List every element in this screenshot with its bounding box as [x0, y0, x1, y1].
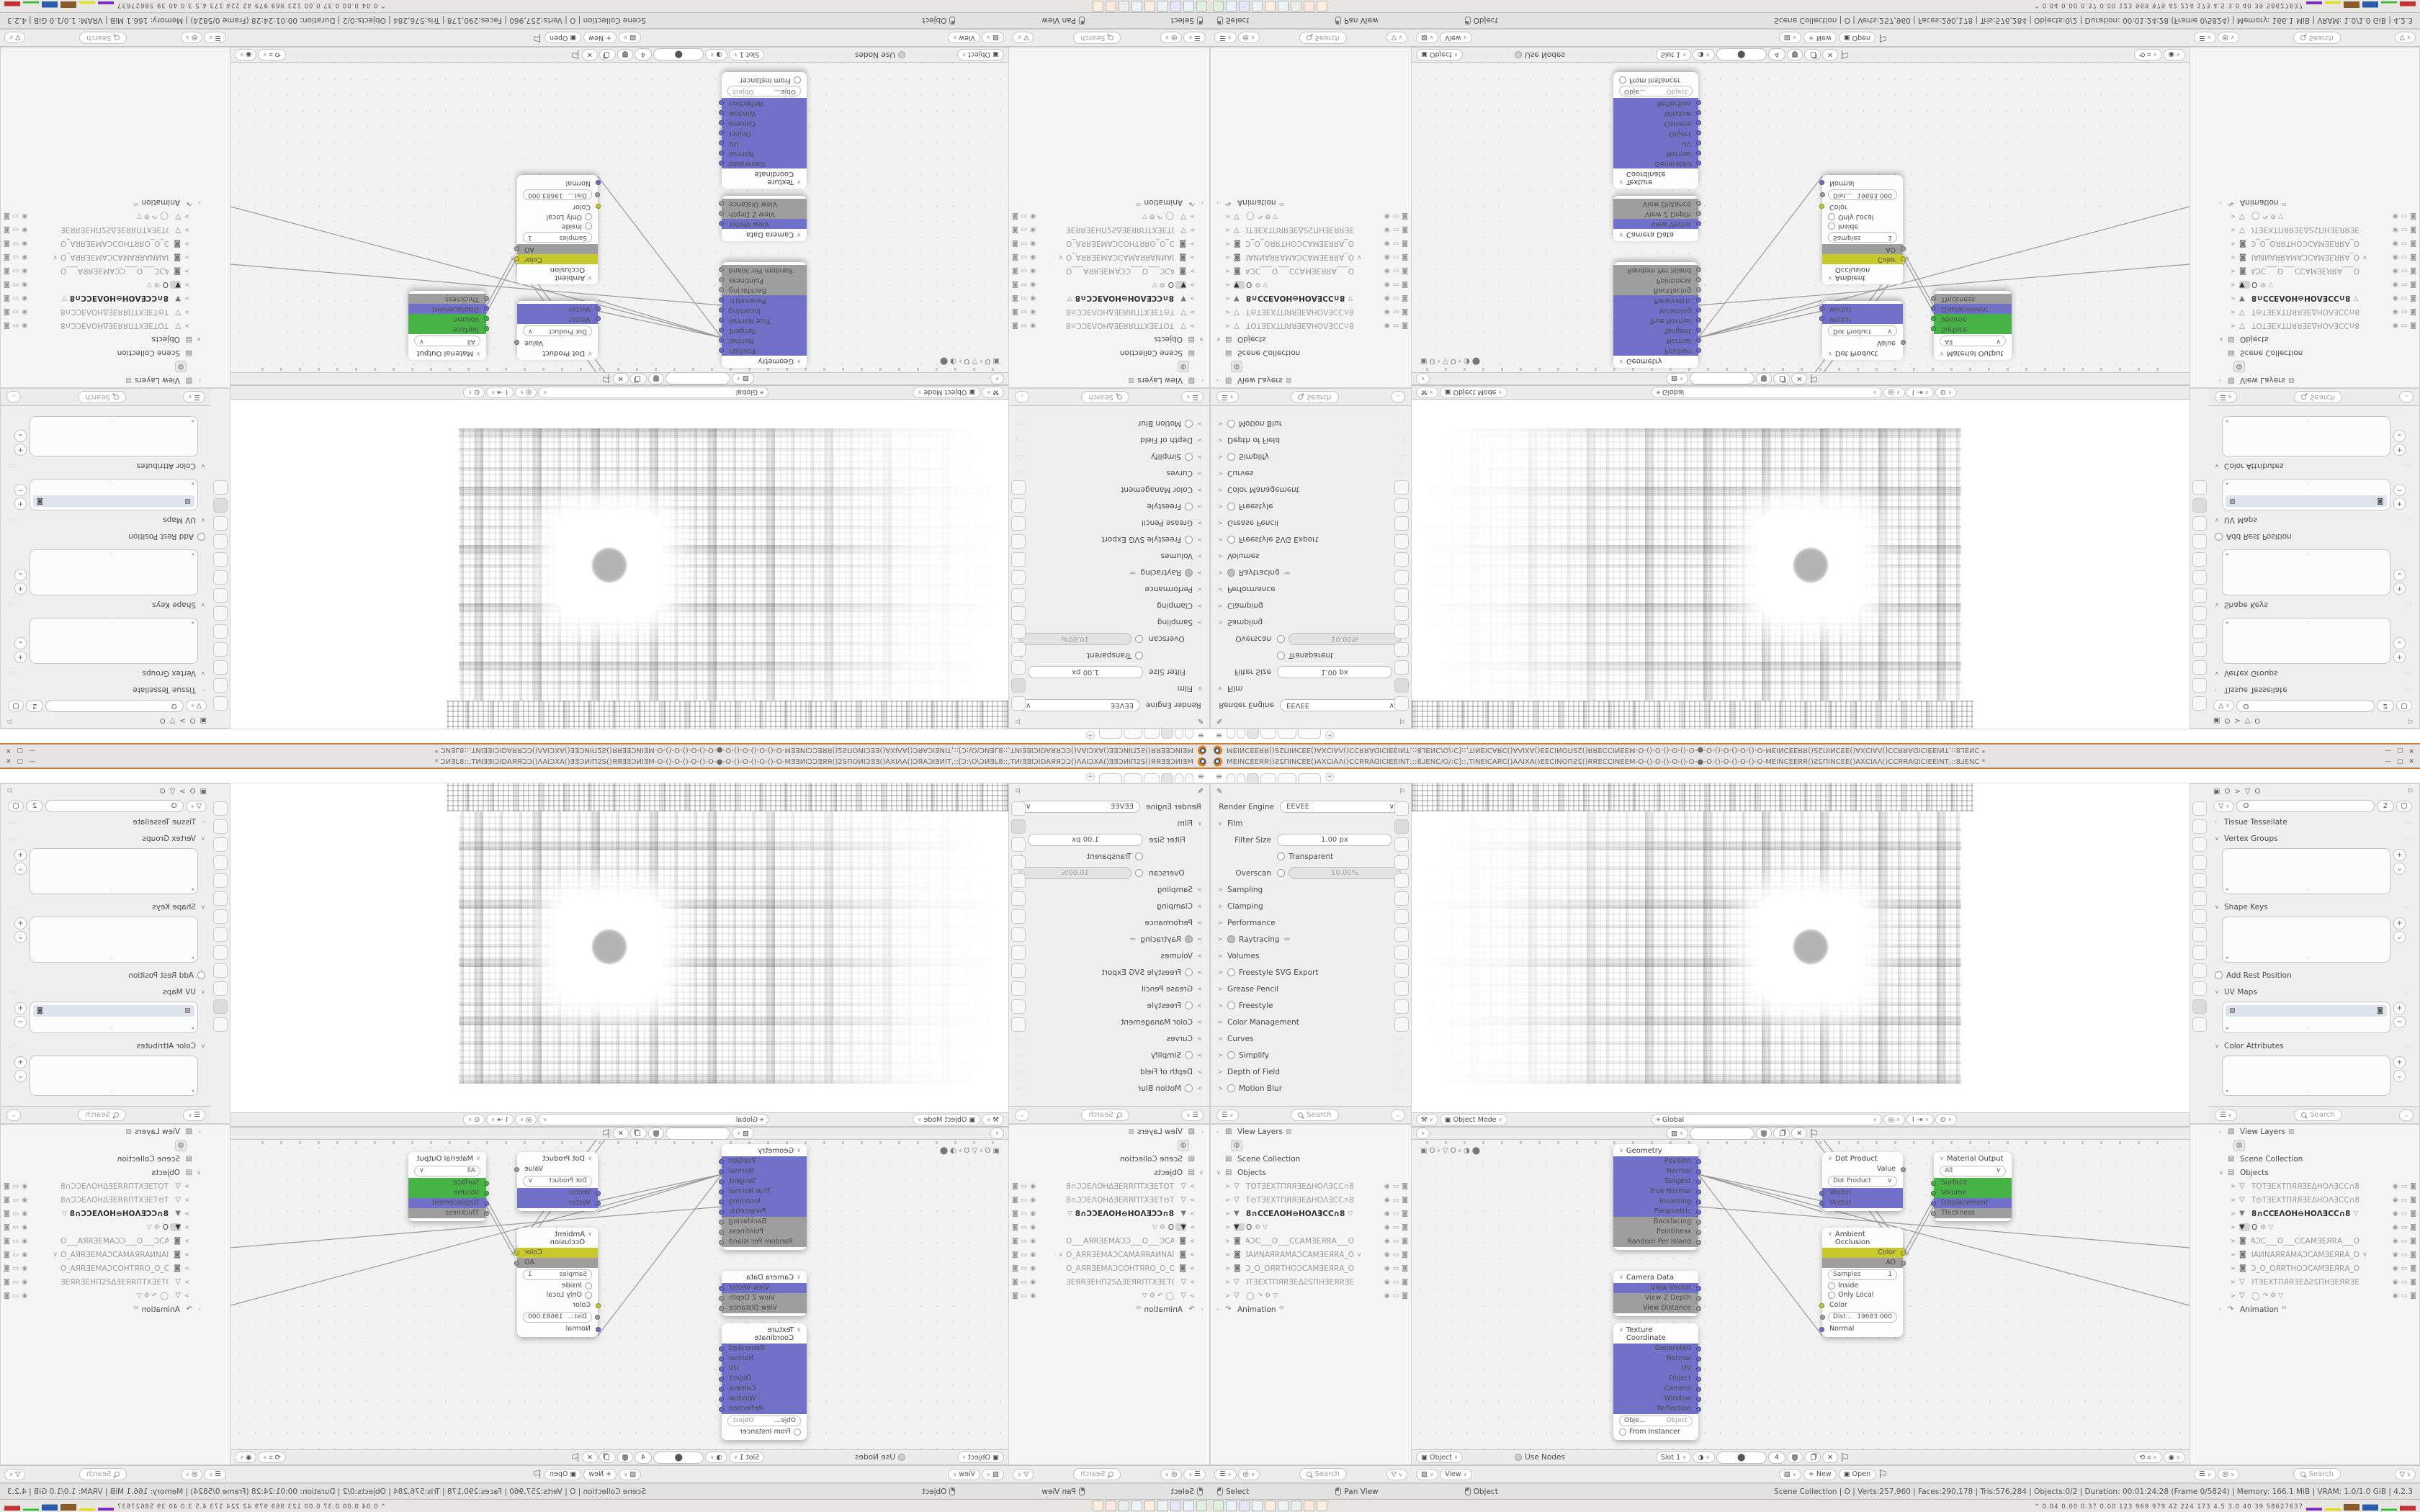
- outliner-object-row[interactable]: > ▽ 8∩ƆƆEΛOHΔƎERRΠTXƎETOTƎEXT ◉▭◙: [1009, 319, 1209, 333]
- properties-tab-icon[interactable]: [213, 480, 228, 495]
- disable-render-icon[interactable]: ◙: [4, 1224, 10, 1231]
- taskbar-app-icon[interactable]: [1317, 1, 1327, 12]
- node-output-socket[interactable]: UV: [722, 138, 807, 148]
- editor-type-button[interactable]: ▨∨: [982, 1469, 1004, 1480]
- hide-icon[interactable]: ◉: [1030, 268, 1036, 275]
- outliner-object-row[interactable]: > ▽ ƎEЯRƎEHΠ2SΔƎEЯRΠTXƎETOTƎEXT ◉▭◙: [2190, 1275, 2419, 1289]
- open-image-button[interactable]: ▣ Open: [544, 1469, 581, 1480]
- shape-key-specials-button[interactable]: ⌄: [2393, 931, 2406, 943]
- material-users-count[interactable]: 4: [1768, 49, 1785, 61]
- ao-only-local-checkbox[interactable]: Only Local: [1828, 213, 1897, 221]
- workspace-tab[interactable]: [1227, 773, 1235, 783]
- outliner-object-row[interactable]: > ▽ 8∩ƆƆEΛOHΔƎERRΠTXƎETOTƎEXT ◉▭◙: [1211, 319, 1411, 333]
- properties-tab-icon[interactable]: [2192, 642, 2207, 657]
- disable-render-icon[interactable]: ◙: [2410, 1197, 2416, 1204]
- color-attribute-specials-button[interactable]: ⌄: [2393, 430, 2406, 442]
- render-panel-row[interactable]: > Simplify ::::: [1211, 1047, 1411, 1063]
- hide-icon[interactable]: ◉: [2393, 323, 2398, 330]
- tray-expander-icon[interactable]: ^: [2034, 1503, 2039, 1511]
- outliner-object-row[interactable]: > ▽ ◯ ↷ ⚙ ▽ ◉▭◙: [2190, 210, 2419, 223]
- disable-render-icon[interactable]: ◙: [1012, 323, 1018, 330]
- unlink-button[interactable]: ✕: [1822, 1452, 1838, 1463]
- add-uv-map-button[interactable]: +: [2393, 1002, 2406, 1014]
- add-rest-position-checkbox[interactable]: [2215, 533, 2223, 541]
- taskbar-app-icon[interactable]: [1239, 1500, 1250, 1511]
- hide-icon[interactable]: ◉: [22, 1197, 27, 1204]
- outliner-object-row[interactable]: > ▽ ◯ ↷ ⚙ ▽ ◉▭◙: [1211, 210, 1411, 223]
- disable-render-icon[interactable]: ◙: [1012, 1197, 1018, 1204]
- workspace-tab[interactable]: [1144, 773, 1160, 783]
- outliner-object-row[interactable]: > ◙ O_AЯRƎEMAƆCOHTЯRO_O_OЯRTH ◉▭◙: [1009, 1261, 1209, 1275]
- fake-user-button[interactable]: [617, 1452, 633, 1463]
- copy-button[interactable]: [630, 1128, 647, 1139]
- workspace-tab[interactable]: [1227, 729, 1235, 739]
- outliner-object-row[interactable]: > ▽ 8∩ƆƆEΛOHΔƎERRΠTXƎET⊖TƎEXT ◉▭◙: [1, 1193, 230, 1207]
- node-output-socket[interactable]: Reflection: [722, 1404, 807, 1414]
- hide-icon[interactable]: ◉: [1384, 254, 1390, 261]
- properties-tab-icon[interactable]: [2192, 999, 2207, 1014]
- ao-distance-field[interactable]: Dist...19683.000: [1828, 189, 1897, 200]
- outliner-object-row[interactable]: > ◙ O_AЯRƎEMAƆCAMAЯRAИNAΠ_Ɔ ∨ ◉▭◙: [1211, 1248, 1411, 1261]
- film-panel-header[interactable]: Film: [1178, 685, 1193, 693]
- node-output-socket[interactable]: Incoming: [722, 305, 807, 315]
- workspace-tab[interactable]: [1124, 729, 1142, 739]
- disable-viewport-icon[interactable]: ▭: [13, 1210, 19, 1218]
- outliner-object-row[interactable]: > ▽ 8∩ƆƆEΛOHΔƎERRΠTXƎET⊖TƎEXT ◉▭◙: [1211, 305, 1411, 319]
- overscan-field[interactable]: 10.00%: [1019, 867, 1131, 879]
- unlink-button[interactable]: ✕: [613, 1128, 629, 1139]
- disable-render-icon[interactable]: ◙: [2410, 268, 2416, 275]
- disable-render-icon[interactable]: ◙: [2410, 323, 2416, 330]
- workspace-menu-icon[interactable]: ≡: [1216, 731, 1222, 740]
- view-layers-label[interactable]: View Layers: [2240, 377, 2285, 385]
- outliner-object-row[interactable]: > ▽ ◯ ↷ ⚙ ▽ ◉▭◙: [1009, 1289, 1209, 1302]
- disable-render-icon[interactable]: ◙: [4, 1197, 10, 1204]
- disable-viewport-icon[interactable]: ▭: [1021, 295, 1028, 302]
- add-shape-key-button[interactable]: +: [2393, 917, 2406, 930]
- filter-users-dropdown[interactable]: ◎∨: [2218, 32, 2239, 44]
- hide-icon[interactable]: ◉: [1030, 254, 1036, 261]
- taskbar-app-icon[interactable]: [1291, 1, 1301, 12]
- editor-type-button[interactable]: ∨: [1416, 1128, 1430, 1139]
- image-mode-dropdown[interactable]: View∨: [948, 32, 980, 44]
- properties-tab-icon[interactable]: [1394, 570, 1409, 585]
- render-panel-row[interactable]: > Performance ::::: [1009, 914, 1209, 931]
- render-panel-row[interactable]: > Depth of Field ::::: [1211, 1063, 1411, 1080]
- filter-size-field[interactable]: 1.00 px: [1028, 834, 1143, 846]
- vertex-groups-panel[interactable]: Vertex Groups: [142, 670, 196, 678]
- disable-viewport-icon[interactable]: ▭: [1393, 240, 1399, 248]
- shape-keys-list[interactable]: ▸::: + ⌄: [2222, 549, 2390, 595]
- properties-tab-icon[interactable]: [2192, 498, 2207, 513]
- image-browse-dropdown[interactable]: ▨∨: [1779, 1469, 1801, 1480]
- node-output-socket[interactable]: UV: [1613, 1364, 1698, 1374]
- overscan-field[interactable]: 10.00%: [1289, 633, 1401, 645]
- outliner-object-row[interactable]: > ▽ ƎEЯRƎEHΠ2SΔƎEЯRΠTXƎETOTƎEXT ◉▭◙: [1009, 223, 1209, 237]
- disable-viewport-icon[interactable]: ▭: [13, 1265, 19, 1272]
- render-panel-row[interactable]: > Freestyle ::::: [1211, 997, 1411, 1014]
- pin-icon[interactable]: ⚐: [6, 717, 13, 725]
- disable-viewport-icon[interactable]: ▭: [13, 254, 19, 261]
- disable-viewport-icon[interactable]: ▭: [1021, 1224, 1028, 1231]
- color-attribute-specials-button[interactable]: ⌄: [14, 430, 27, 442]
- slot-select[interactable]: Slot 1∨: [1656, 49, 1691, 60]
- pivot-dropdown[interactable]: ◎∨: [1883, 387, 1905, 398]
- tissue-panel[interactable]: Tissue Tessellate: [133, 686, 196, 695]
- properties-tab-icon[interactable]: [213, 945, 228, 960]
- node-output-socket[interactable]: Parametric: [722, 295, 807, 305]
- users-count[interactable]: 2: [2377, 700, 2394, 712]
- outliner-object-row[interactable]: > ▽ 8∩ƆƆEΛOHΔƎERRΠTXƎETOTƎEXT ◉▭◙: [2190, 1179, 2419, 1193]
- hide-icon[interactable]: ◉: [22, 1183, 27, 1190]
- node-texture-coordinate[interactable]: ∨Texture Coordinate Generated Normal UV …: [722, 72, 807, 189]
- film-panel-header[interactable]: Film: [1227, 685, 1242, 693]
- shape-key-specials-button[interactable]: ⌄: [2393, 569, 2406, 581]
- display-mode-dropdown[interactable]: ☰∨: [1214, 1469, 1237, 1480]
- vertex-groups-panel[interactable]: Vertex Groups: [142, 834, 196, 843]
- render-panel-row[interactable]: > Depth of Field ::::: [1009, 432, 1209, 449]
- search-input[interactable]: Search: [1291, 1109, 1338, 1121]
- node-output-socket[interactable]: Window: [722, 108, 807, 118]
- render-engine-select[interactable]: EEVEE∨: [1019, 801, 1140, 813]
- taskbar-app-icon[interactable]: [1119, 1500, 1129, 1511]
- render-panel-row[interactable]: > Motion Blur ::::: [1211, 1080, 1411, 1097]
- taskbar-app-icon[interactable]: [1144, 1, 1155, 12]
- disable-render-icon[interactable]: ◙: [4, 1183, 10, 1190]
- use-nodes-checkbox[interactable]: Use Nodes: [1515, 1453, 1565, 1462]
- properties-tab-icon[interactable]: [1011, 981, 1026, 996]
- fake-user-button[interactable]: [1787, 49, 1803, 60]
- properties-tab-icon[interactable]: [1011, 909, 1026, 924]
- outliner-object-row[interactable]: > ◙ O___AЯRƎEMAƆƆ___O___ƆCAMƎ ◉▭◙: [2190, 264, 2419, 278]
- disable-render-icon[interactable]: ◙: [2410, 1279, 2416, 1286]
- taskbar-app-icon[interactable]: [1278, 1500, 1289, 1511]
- render-panel-row[interactable]: > Freestyle SVG Export ::::: [1211, 531, 1411, 548]
- world-icon[interactable]: ◍: [1231, 361, 1242, 373]
- properties-tab-icon[interactable]: [213, 642, 228, 657]
- output-target-select[interactable]: All∨: [414, 336, 480, 346]
- render-panel-row[interactable]: > Raytracing ≔ ::::: [1211, 931, 1411, 948]
- disable-render-icon[interactable]: ◙: [4, 1292, 10, 1300]
- disable-viewport-icon[interactable]: ▭: [1021, 268, 1028, 275]
- properties-tab-icon[interactable]: [1394, 696, 1409, 711]
- node-geometry[interactable]: ∨Geometry Position Normal Tangent True N…: [722, 1144, 807, 1250]
- node-output-socket[interactable]: Value: [1822, 338, 1903, 348]
- add-vertex-group-button[interactable]: +: [14, 849, 27, 861]
- outliner-object-row[interactable]: > ▼ 8∩ƆƆEΛOH⊖HOΛƎƆƆ∩8 ▽ ◉▭◙: [1211, 292, 1411, 305]
- image-mode-dropdown[interactable]: View∨: [1440, 1469, 1472, 1480]
- hide-icon[interactable]: ◉: [22, 1292, 27, 1300]
- properties-tab-icon[interactable]: [2192, 945, 2207, 960]
- close-button[interactable]: ✕: [2408, 758, 2414, 765]
- overscan-checkbox[interactable]: [1277, 869, 1285, 877]
- proportional-edit-toggle[interactable]: ⊙∨: [1935, 387, 1957, 398]
- options-dropdown[interactable]: ⌄: [1391, 392, 1405, 403]
- outliner-object-row[interactable]: > ▽ ◯ ↷ ⚙ ▽ ◉▭◙: [2190, 1289, 2419, 1302]
- snap-toggle[interactable]: ⌇⇥∨: [486, 387, 514, 398]
- add-uv-map-button[interactable]: +: [14, 498, 27, 510]
- disable-viewport-icon[interactable]: ▭: [1393, 213, 1399, 220]
- render-engine-select[interactable]: EEVEE∨: [1280, 699, 1401, 711]
- snap-toggle[interactable]: ⌇⇥∨: [1906, 387, 1934, 398]
- node-input-socket[interactable]: Displacement: [1934, 304, 2012, 314]
- options-dropdown[interactable]: ⌄: [1015, 392, 1029, 403]
- ao-color-input[interactable]: Color: [517, 1300, 598, 1310]
- outliner-object-row[interactable]: > ◙ O_AЯRƎEMAƆCOHTЯRO_O_OЯRTH ◉▭◙: [1009, 237, 1209, 251]
- outliner-object-row[interactable]: > ▽ ◯ ↷ ⚙ ▽ ◉▭◙: [1211, 1289, 1411, 1302]
- outliner-object-row[interactable]: > ▼ 8∩ƆƆEΛOH⊖HOΛƎƆƆ∩8 ▽ ◉▭◙: [1211, 1207, 1411, 1220]
- disable-viewport-icon[interactable]: ▭: [1021, 309, 1028, 316]
- properties-tab-icon[interactable]: [1394, 642, 1409, 657]
- pin-icon[interactable]: ⚐: [1399, 717, 1405, 725]
- properties-tab-icon[interactable]: [213, 624, 228, 639]
- view-layers-label[interactable]: View Layers: [1237, 1128, 1283, 1136]
- render-panel-row[interactable]: > Curves ::::: [1009, 1030, 1209, 1047]
- snap-toggle[interactable]: ⟲⌗∨: [2134, 49, 2161, 60]
- disable-viewport-icon[interactable]: ▭: [13, 240, 19, 248]
- properties-editor-icon[interactable]: ✎: [1198, 788, 1204, 796]
- hide-icon[interactable]: ◉: [1384, 240, 1390, 248]
- film-panel-header[interactable]: Film: [1178, 819, 1193, 828]
- search-input[interactable]: Search: [2293, 1468, 2341, 1480]
- outliner-object-row[interactable]: > ▼ O ⚙ ▽ ◉▭◙: [1009, 1220, 1209, 1234]
- properties-tab-icon[interactable]: [1011, 498, 1026, 513]
- hide-icon[interactable]: ◉: [1030, 1197, 1036, 1204]
- ao-inside-checkbox[interactable]: Inside: [523, 1282, 592, 1290]
- node-output-socket[interactable]: View Vector: [1613, 1283, 1698, 1293]
- node-geometry[interactable]: ∨Geometry Position Normal Tangent True N…: [722, 262, 807, 368]
- add-color-attribute-button[interactable]: +: [2393, 444, 2406, 456]
- pivot-dropdown[interactable]: ◎∨: [515, 387, 537, 398]
- properties-tab-icon[interactable]: [213, 678, 228, 693]
- outliner-object-row[interactable]: > ▽ ƎEЯRƎEHΠ2SΔƎEЯRΠTXƎETOTƎEXT ◉▭◙: [1211, 223, 1411, 237]
- outliner-object-row[interactable]: > ▼ O ⚙ ▽ ◉▭◙: [2190, 1220, 2419, 1234]
- node-input-socket[interactable]: Vector: [1822, 304, 1903, 314]
- disable-render-icon[interactable]: ◙: [1402, 309, 1408, 316]
- tissue-panel[interactable]: Tissue Tessellate: [2224, 686, 2287, 695]
- hide-icon[interactable]: ◉: [1384, 1265, 1390, 1272]
- mode-dropdown[interactable]: ▣ Object Mode∨: [1440, 387, 1507, 398]
- hide-icon[interactable]: ◉: [2393, 282, 2398, 289]
- properties-tab-icon[interactable]: [1011, 516, 1026, 531]
- ao-normal-input[interactable]: Normal: [1822, 1324, 1903, 1334]
- pin-icon[interactable]: ⚐: [532, 1467, 542, 1481]
- outliner-object-row[interactable]: > ▽ ƎEЯRƎEHΠ2SΔƎEЯRΠTXƎETOTƎEXT ◉▭◙: [2190, 223, 2419, 237]
- uv-map-item[interactable]: ▨◙: [2226, 495, 2387, 507]
- outliner-object-row[interactable]: > ◙ O_AЯRƎEMAƆCAMAЯRAИNAΠ_Ɔ ∨ ◉▭◙: [2190, 1248, 2419, 1261]
- properties-tab-icon[interactable]: [2192, 1017, 2207, 1032]
- node-output-socket[interactable]: Normal: [1613, 1354, 1698, 1364]
- disable-viewport-icon[interactable]: ▭: [2401, 1292, 2408, 1300]
- properties-tab-icon[interactable]: [1011, 945, 1026, 960]
- node-input-socket[interactable]: Thickness: [408, 1208, 486, 1218]
- open-image-button[interactable]: ▣ Open: [544, 32, 581, 44]
- taskbar-app-icon[interactable]: [1196, 1, 1207, 12]
- outliner-object-row[interactable]: > ◙ O_AЯRƎEMAƆCOHTЯRO_O_OЯRTH ◉▭◙: [1211, 237, 1411, 251]
- disable-render-icon[interactable]: ◙: [1402, 1292, 1408, 1300]
- filter-users-dropdown[interactable]: ◎∨: [1160, 1469, 1182, 1480]
- properties-tab-icon[interactable]: [1011, 999, 1026, 1014]
- disable-viewport-icon[interactable]: ▭: [1393, 268, 1399, 275]
- properties-tab-icon[interactable]: [1011, 1017, 1026, 1032]
- node-output-socket[interactable]: UV: [722, 1364, 807, 1374]
- properties-tab-icon[interactable]: [2192, 696, 2207, 711]
- properties-tab-icon[interactable]: [2192, 909, 2207, 924]
- properties-tab-icon[interactable]: [213, 963, 228, 978]
- scene-collection-label[interactable]: Scene Collection: [2240, 1155, 2303, 1164]
- tissue-panel[interactable]: Tissue Tessellate: [133, 818, 196, 827]
- pin-icon[interactable]: ⚐: [1809, 1127, 1819, 1140]
- disable-render-icon[interactable]: ◙: [1402, 1279, 1408, 1286]
- node-input-socket[interactable]: Vector: [517, 314, 598, 324]
- node-output-socket[interactable]: View Distance: [1613, 1303, 1698, 1313]
- render-panel-row[interactable]: > Simplify ::::: [1009, 1047, 1209, 1063]
- disable-render-icon[interactable]: ◙: [2410, 213, 2416, 220]
- outliner-object-row[interactable]: > ▼ 8∩ƆƆEΛOH⊖HOΛƎƆƆ∩8 ▽ ◉▭◙: [1, 1207, 230, 1220]
- outliner-object-row[interactable]: > ▼ 8∩ƆƆEΛOH⊖HOΛƎƆƆ∩8 ▽ ◉▭◙: [2190, 292, 2419, 305]
- node-camera-data[interactable]: ∨Camera Data View Vector View Z Depth Vi…: [1613, 1271, 1698, 1316]
- overlay-toggle[interactable]: ◉∨: [2164, 1452, 2185, 1463]
- view-layers-label[interactable]: View Layers: [135, 1128, 180, 1136]
- disable-render-icon[interactable]: ◙: [2410, 1265, 2416, 1272]
- disable-viewport-icon[interactable]: ▭: [1393, 309, 1399, 316]
- disable-viewport-icon[interactable]: ▭: [1021, 1292, 1028, 1300]
- snap-toggle[interactable]: ⟲⌗∨: [258, 49, 285, 60]
- search-input[interactable]: Search: [1291, 391, 1338, 403]
- color-attribute-specials-button[interactable]: ⌄: [14, 1070, 27, 1082]
- tray-expander-icon[interactable]: ^: [380, 2, 385, 9]
- node-output-socket[interactable]: Position: [1613, 346, 1698, 356]
- render-panel-row[interactable]: > Volumes ::::: [1009, 948, 1209, 964]
- display-mode-dropdown[interactable]: ☰∨: [1183, 32, 1206, 44]
- node-output-socket[interactable]: Reflection: [722, 98, 807, 108]
- disable-render-icon[interactable]: ◙: [1402, 240, 1408, 248]
- active-render-icon[interactable]: ◙: [2377, 498, 2383, 505]
- node-output-socket[interactable]: Parametric: [1613, 295, 1698, 305]
- color-attributes-list[interactable]: ▸::: + ⌄: [2222, 1056, 2390, 1096]
- mode-dropdown[interactable]: ▣ Object Mode∨: [1440, 1114, 1507, 1125]
- node-output-socket[interactable]: Normal: [1613, 148, 1698, 158]
- ao-normal-input[interactable]: Normal: [517, 1324, 598, 1334]
- render-panel-row[interactable]: > Sampling ::::: [1211, 614, 1411, 631]
- animation-label[interactable]: Animation: [141, 199, 180, 207]
- disable-viewport-icon[interactable]: ▭: [13, 227, 19, 234]
- unlink-button[interactable]: ✕: [1791, 1128, 1807, 1139]
- filter-users-dropdown[interactable]: ◎∨: [2218, 1469, 2239, 1480]
- node-output-socket[interactable]: Random Per Island: [1613, 265, 1698, 275]
- node-input-socket[interactable]: Volume: [1934, 314, 2012, 324]
- hide-icon[interactable]: ◉: [1384, 1224, 1390, 1231]
- properties-editor-icon[interactable]: ✎: [1216, 788, 1222, 796]
- node-output-socket[interactable]: Tangent: [1613, 325, 1698, 336]
- node-output-socket[interactable]: Random Per Island: [1613, 1237, 1698, 1247]
- node-output-socket[interactable]: Parametric: [1613, 1207, 1698, 1217]
- hide-icon[interactable]: ◉: [22, 282, 27, 289]
- properties-tab-icon[interactable]: [2192, 819, 2207, 834]
- node-output-socket[interactable]: View Vector: [722, 1283, 807, 1293]
- maximize-button[interactable]: ▢: [17, 758, 24, 765]
- node-texture-coordinate[interactable]: ∨Texture Coordinate Generated Normal UV …: [1613, 72, 1698, 189]
- properties-tab-icon[interactable]: [1394, 963, 1409, 978]
- hide-icon[interactable]: ◉: [1030, 1292, 1036, 1300]
- outliner-object-row[interactable]: > ▽ ƎEЯRƎEHΠ2SΔƎEЯRΠTXƎETOTƎEXT ◉▭◙: [1, 1275, 230, 1289]
- workspace-tab[interactable]: [1161, 773, 1173, 783]
- node-dot-product[interactable]: ∨Dot Product Value Dot Product∨ Vector V…: [1822, 301, 1903, 360]
- properties-tab-icon[interactable]: [1394, 909, 1409, 924]
- render-panel-row[interactable]: > Freestyle ::::: [1211, 498, 1411, 515]
- disable-render-icon[interactable]: ◙: [4, 227, 10, 234]
- fake-user-button[interactable]: [1756, 1128, 1772, 1139]
- node-output-socket[interactable]: Generated: [1613, 158, 1698, 168]
- properties-tab-icon[interactable]: [213, 819, 228, 834]
- mesh-name-field[interactable]: O: [45, 700, 183, 712]
- vertex-group-specials-button[interactable]: ⌄: [14, 637, 27, 649]
- material-slot-icon[interactable]: ▨∨: [1666, 1128, 1688, 1139]
- node-dot-product[interactable]: ∨Dot Product Value Dot Product∨ Vector V…: [1822, 1152, 1903, 1211]
- node-input-socket[interactable]: Surface: [1934, 324, 2012, 334]
- add-workspace-button[interactable]: +: [1086, 773, 1095, 781]
- filter-size-field[interactable]: 1.00 px: [1277, 666, 1392, 678]
- hide-icon[interactable]: ◉: [22, 240, 27, 248]
- node-output-socket[interactable]: Pointiness: [722, 275, 807, 285]
- animation-label[interactable]: Animation: [1237, 1305, 1276, 1314]
- use-nodes-checkbox[interactable]: Use Nodes: [855, 50, 905, 59]
- render-panel-row[interactable]: > Clamping ::::: [1211, 598, 1411, 614]
- outliner-object-row[interactable]: > ▼ O ⚙ ▽ ◉▭◙: [1, 1220, 230, 1234]
- copy-button[interactable]: [1804, 1452, 1821, 1463]
- node-output-socket[interactable]: Random Per Island: [722, 265, 807, 275]
- disable-render-icon[interactable]: ◙: [1402, 323, 1408, 330]
- minimize-button[interactable]: —: [2385, 758, 2391, 765]
- hide-icon[interactable]: ◉: [1030, 1183, 1036, 1190]
- disable-render-icon[interactable]: ◙: [1402, 254, 1408, 261]
- node-output-socket[interactable]: Normal: [722, 1354, 807, 1364]
- disable-viewport-icon[interactable]: ▭: [2401, 323, 2408, 330]
- workspace-tab[interactable]: [1161, 729, 1173, 739]
- disable-viewport-icon[interactable]: ▭: [1393, 1210, 1399, 1218]
- color-attributes-panel[interactable]: Color Attributes: [2224, 1042, 2284, 1050]
- hide-icon[interactable]: ◉: [1030, 1224, 1036, 1231]
- properties-tab-icon[interactable]: [213, 999, 228, 1014]
- disable-viewport-icon[interactable]: ▭: [2401, 1224, 2408, 1231]
- disable-viewport-icon[interactable]: ▭: [1021, 1197, 1028, 1204]
- disable-viewport-icon[interactable]: ▭: [1393, 1251, 1399, 1259]
- taskbar-app-icon[interactable]: [1196, 1500, 1207, 1511]
- disable-viewport-icon[interactable]: ▭: [13, 1251, 19, 1259]
- workspace-tab[interactable]: [1247, 773, 1259, 783]
- node-input-socket[interactable]: Displacement: [408, 304, 486, 314]
- from-instancer-checkbox[interactable]: From Instancer: [1619, 76, 1693, 84]
- disable-viewport-icon[interactable]: ▭: [2401, 1251, 2408, 1259]
- properties-tab-icon[interactable]: [1394, 819, 1409, 834]
- pivot-dropdown[interactable]: ◎∨: [1883, 1114, 1905, 1125]
- new-image-button[interactable]: + New: [1803, 32, 1837, 44]
- node-output-socket[interactable]: Object: [1613, 1374, 1698, 1384]
- copy-button[interactable]: [599, 1452, 616, 1463]
- render-engine-select[interactable]: EEVEE∨: [1019, 699, 1140, 711]
- properties-tab-icon[interactable]: [1011, 696, 1026, 711]
- outliner-object-row[interactable]: > ▽ ƎEЯRƎEHΠ2SΔƎEЯRΠTXƎETOTƎEXT ◉▭◙: [1, 223, 230, 237]
- editor-type-button[interactable]: ⚒∨: [1416, 387, 1438, 398]
- hide-icon[interactable]: ◉: [22, 213, 27, 220]
- workspace-tab[interactable]: [1237, 773, 1245, 783]
- disable-viewport-icon[interactable]: ▭: [1393, 227, 1399, 234]
- properties-tab-icon[interactable]: [1011, 606, 1026, 621]
- outliner-object-row[interactable]: > ▽ 8∩ƆƆEΛOHΔƎERRΠTXƎET⊖TƎEXT ◉▭◙: [1009, 305, 1209, 319]
- disable-render-icon[interactable]: ◙: [1402, 1183, 1408, 1190]
- properties-tab-icon[interactable]: [2192, 480, 2207, 495]
- overlay-toggle[interactable]: ◉∨: [2164, 49, 2185, 60]
